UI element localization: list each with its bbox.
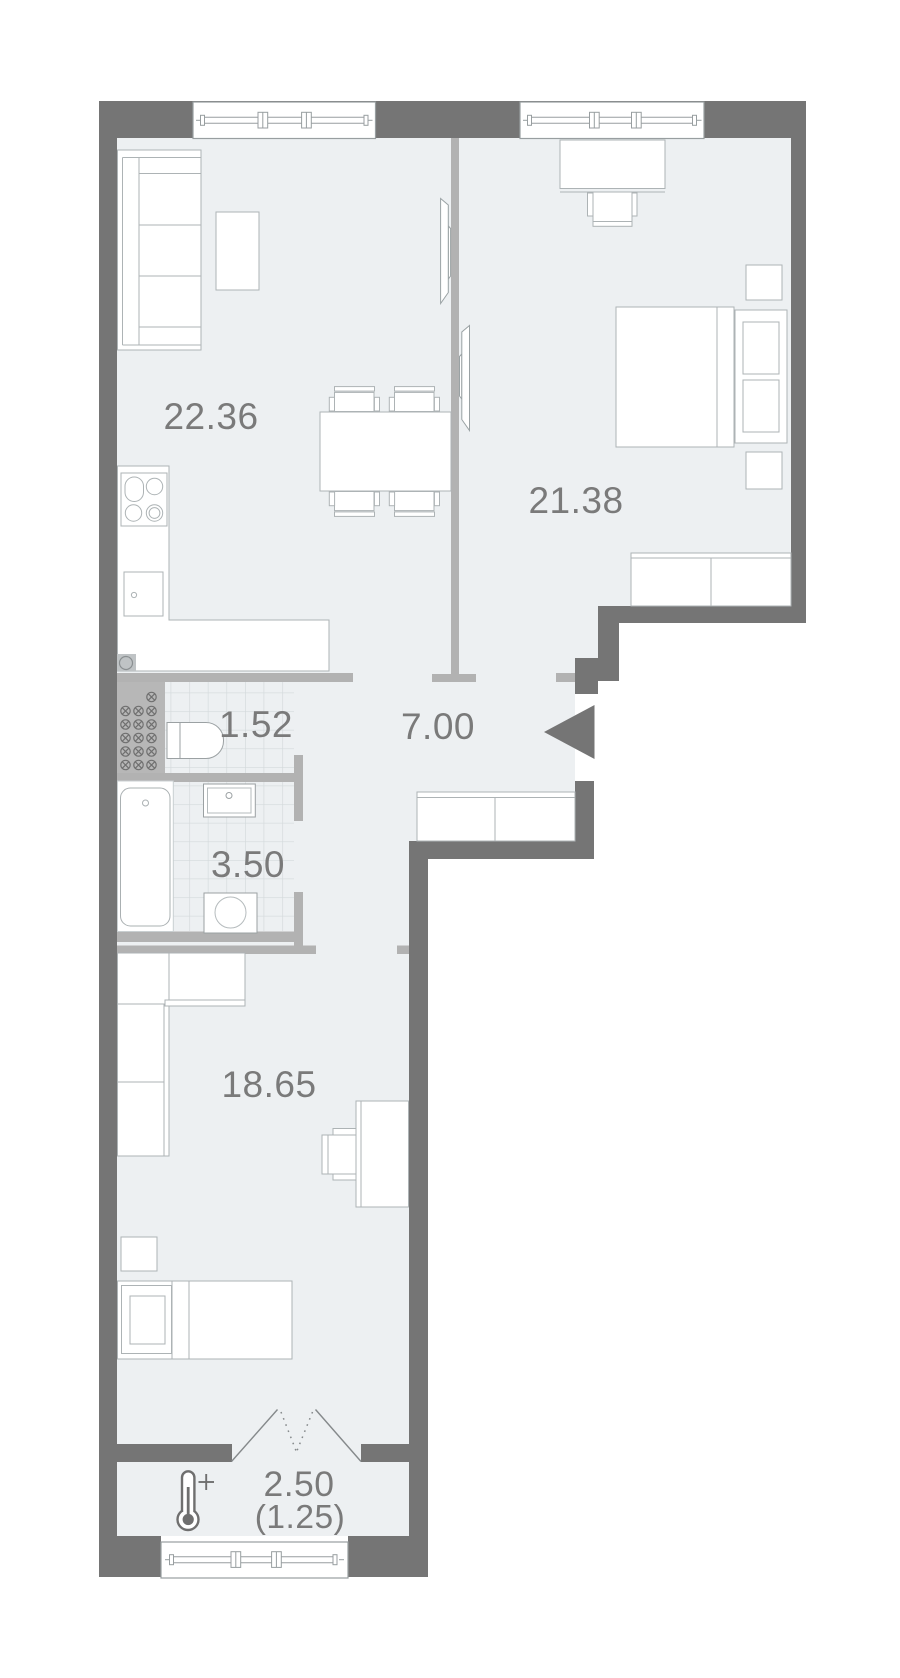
svg-text:18.65: 18.65 [221, 1064, 316, 1105]
svg-text:1.52: 1.52 [219, 704, 293, 745]
svg-text:22.36: 22.36 [163, 396, 258, 437]
svg-text:2.50: 2.50 [263, 1464, 334, 1504]
svg-text:3.50: 3.50 [211, 844, 285, 885]
svg-text:(1.25): (1.25) [255, 1499, 346, 1536]
svg-text:21.38: 21.38 [528, 480, 623, 521]
svg-text:7.00: 7.00 [401, 706, 475, 747]
